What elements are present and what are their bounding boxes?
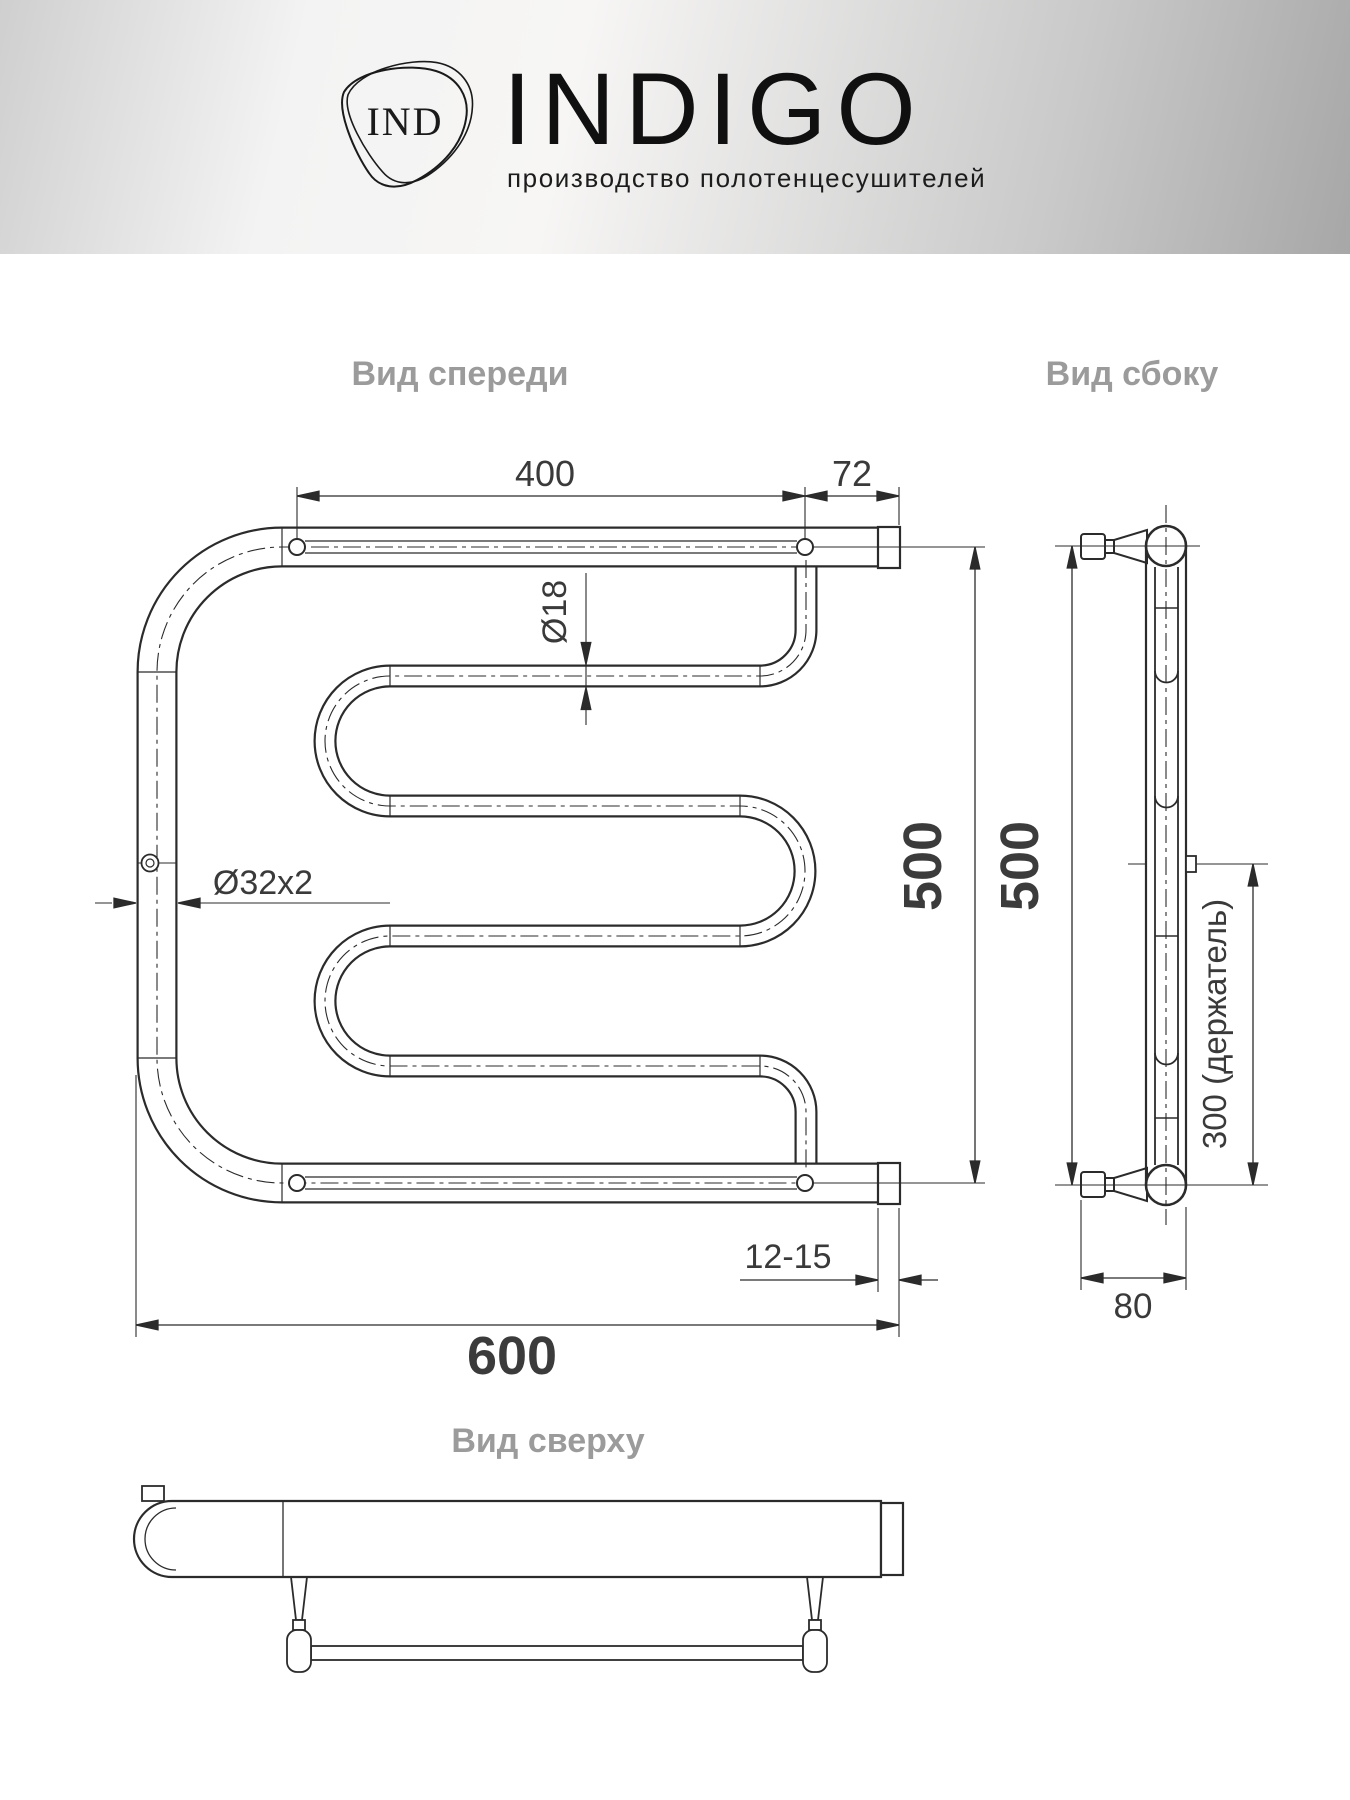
holder-pin-detail	[142, 855, 159, 872]
dim-500-front: 500	[893, 821, 953, 911]
vent-plug	[142, 1486, 164, 1501]
front-view-label: Вид спереди	[352, 355, 569, 393]
top-view-drawing	[134, 1486, 903, 1672]
side-view-drawing	[1081, 505, 1196, 1225]
dim-72: 72	[832, 453, 872, 494]
dim-80: 80	[1114, 1287, 1153, 1326]
top-view-label: Вид сверху	[451, 1422, 644, 1460]
top-wall-cap	[881, 1503, 903, 1575]
dim-400: 400	[515, 453, 575, 494]
side-view-label: Вид сбоку	[1046, 355, 1219, 393]
technical-drawing: Вид спереди Вид сбоку Вид сверху	[0, 0, 1350, 1800]
dim-600: 600	[467, 1326, 557, 1386]
dim-500-side: 500	[990, 821, 1050, 911]
holder-bracket	[1186, 856, 1196, 872]
page: { "header": { "monogram": "IND", "brand"…	[0, 0, 1350, 1800]
dim-d18: Ø18	[536, 580, 574, 644]
dim-d32x2: Ø32x2	[213, 864, 313, 902]
dim-12-15: 12-15	[745, 1238, 832, 1276]
dim-300-holder: 300 (держатель)	[1196, 899, 1233, 1149]
